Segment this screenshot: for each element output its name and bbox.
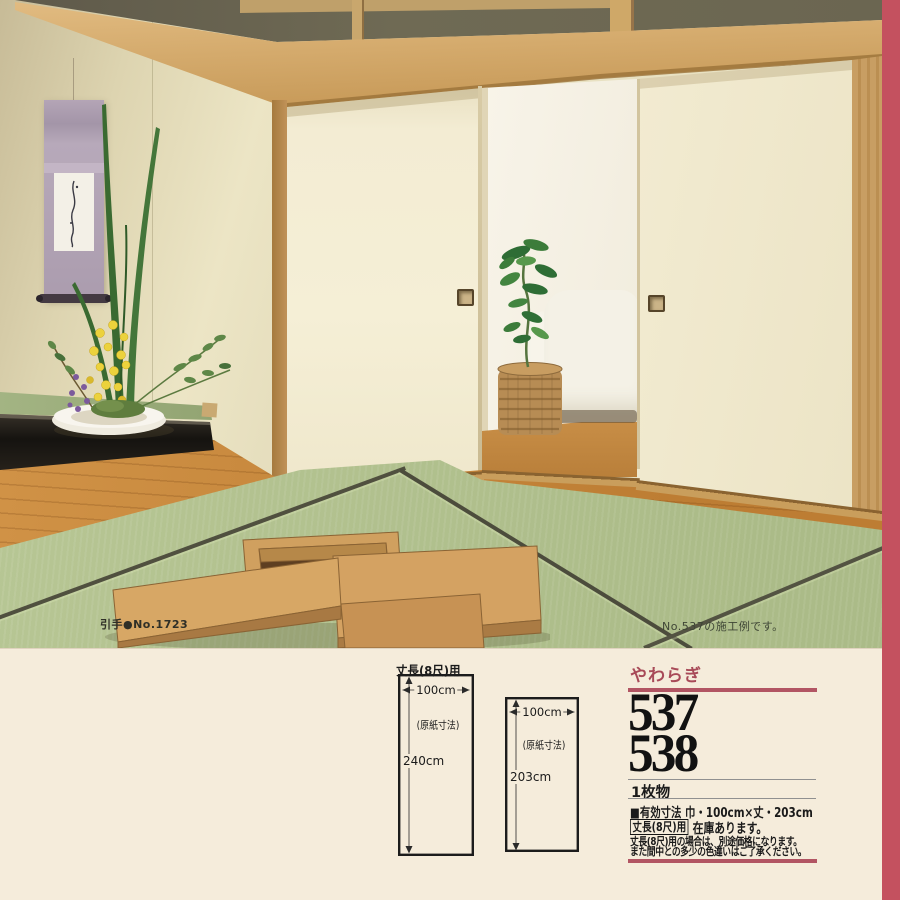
table-front-board xyxy=(341,594,484,648)
spec-section: 丈長(8尺)用 100cm (原紙寸法) 240cm xyxy=(0,648,882,900)
leaf-blades xyxy=(72,104,160,409)
divider-line xyxy=(628,779,816,780)
height-dimension-label: 240cm xyxy=(401,754,446,768)
product-notes: 丈長(8尺)用の場合は、別途価格になります。 また間中との多少の色違いはご了承く… xyxy=(630,837,806,857)
doorway-opening xyxy=(482,77,637,477)
length-type-badge: 丈長(8尺)用 xyxy=(630,819,689,835)
height-dimension-label: 203cm xyxy=(508,770,553,784)
width-dimension-label: 100cm xyxy=(414,683,457,697)
paper-size-diagram-240: 100cm (原紙寸法) 240cm xyxy=(398,674,474,856)
paper-size-diagram-203: 100cm (原紙寸法) 203cm xyxy=(505,697,579,853)
fusuma-door-left xyxy=(287,88,482,498)
ikebana-arrangement xyxy=(30,75,250,445)
accent-rule-bottom xyxy=(628,859,817,863)
product-code-538: 538 xyxy=(628,726,696,780)
divider-line xyxy=(628,798,816,799)
product-panel: やわらぎ 537 538 1枚物 ■有効寸法 巾・100cm×丈・203cm 丈… xyxy=(628,661,820,869)
potted-plant xyxy=(497,237,559,367)
page-right-border xyxy=(882,0,900,900)
stock-availability-text: 在庫あります。 xyxy=(693,817,768,837)
width-dimension-label: 100cm xyxy=(520,705,563,719)
transom-post xyxy=(352,0,364,44)
door-edge xyxy=(637,79,640,469)
door-edge xyxy=(478,86,482,478)
door-pull-handle xyxy=(457,289,474,306)
door-frame-post-left xyxy=(272,100,287,488)
wicker-basket xyxy=(498,363,562,436)
moss-mound xyxy=(91,400,145,418)
photo-caption-handle-number: 引手●No.1723 xyxy=(100,616,188,632)
plant-and-basket xyxy=(482,77,637,477)
stock-row: 丈長(8尺)用 在庫あります。 xyxy=(630,817,767,837)
catalog-page: 引手●No.1723 No.537の施工例です。 丈長(8尺)用 100cm (… xyxy=(0,0,900,900)
photo-caption-example-note: No.537の施工例です。 xyxy=(662,618,784,634)
door-pull-handle xyxy=(648,295,665,312)
room-photo: 引手●No.1723 No.537の施工例です。 xyxy=(0,0,882,648)
note-line: また間中との多少の色違いはご了承ください。 xyxy=(630,847,806,857)
fusuma-door-right xyxy=(637,60,852,515)
paper-size-label: (原紙寸法) xyxy=(415,718,461,733)
paper-size-label: (原紙寸法) xyxy=(521,738,567,753)
door-frame-post-right xyxy=(852,56,882,516)
